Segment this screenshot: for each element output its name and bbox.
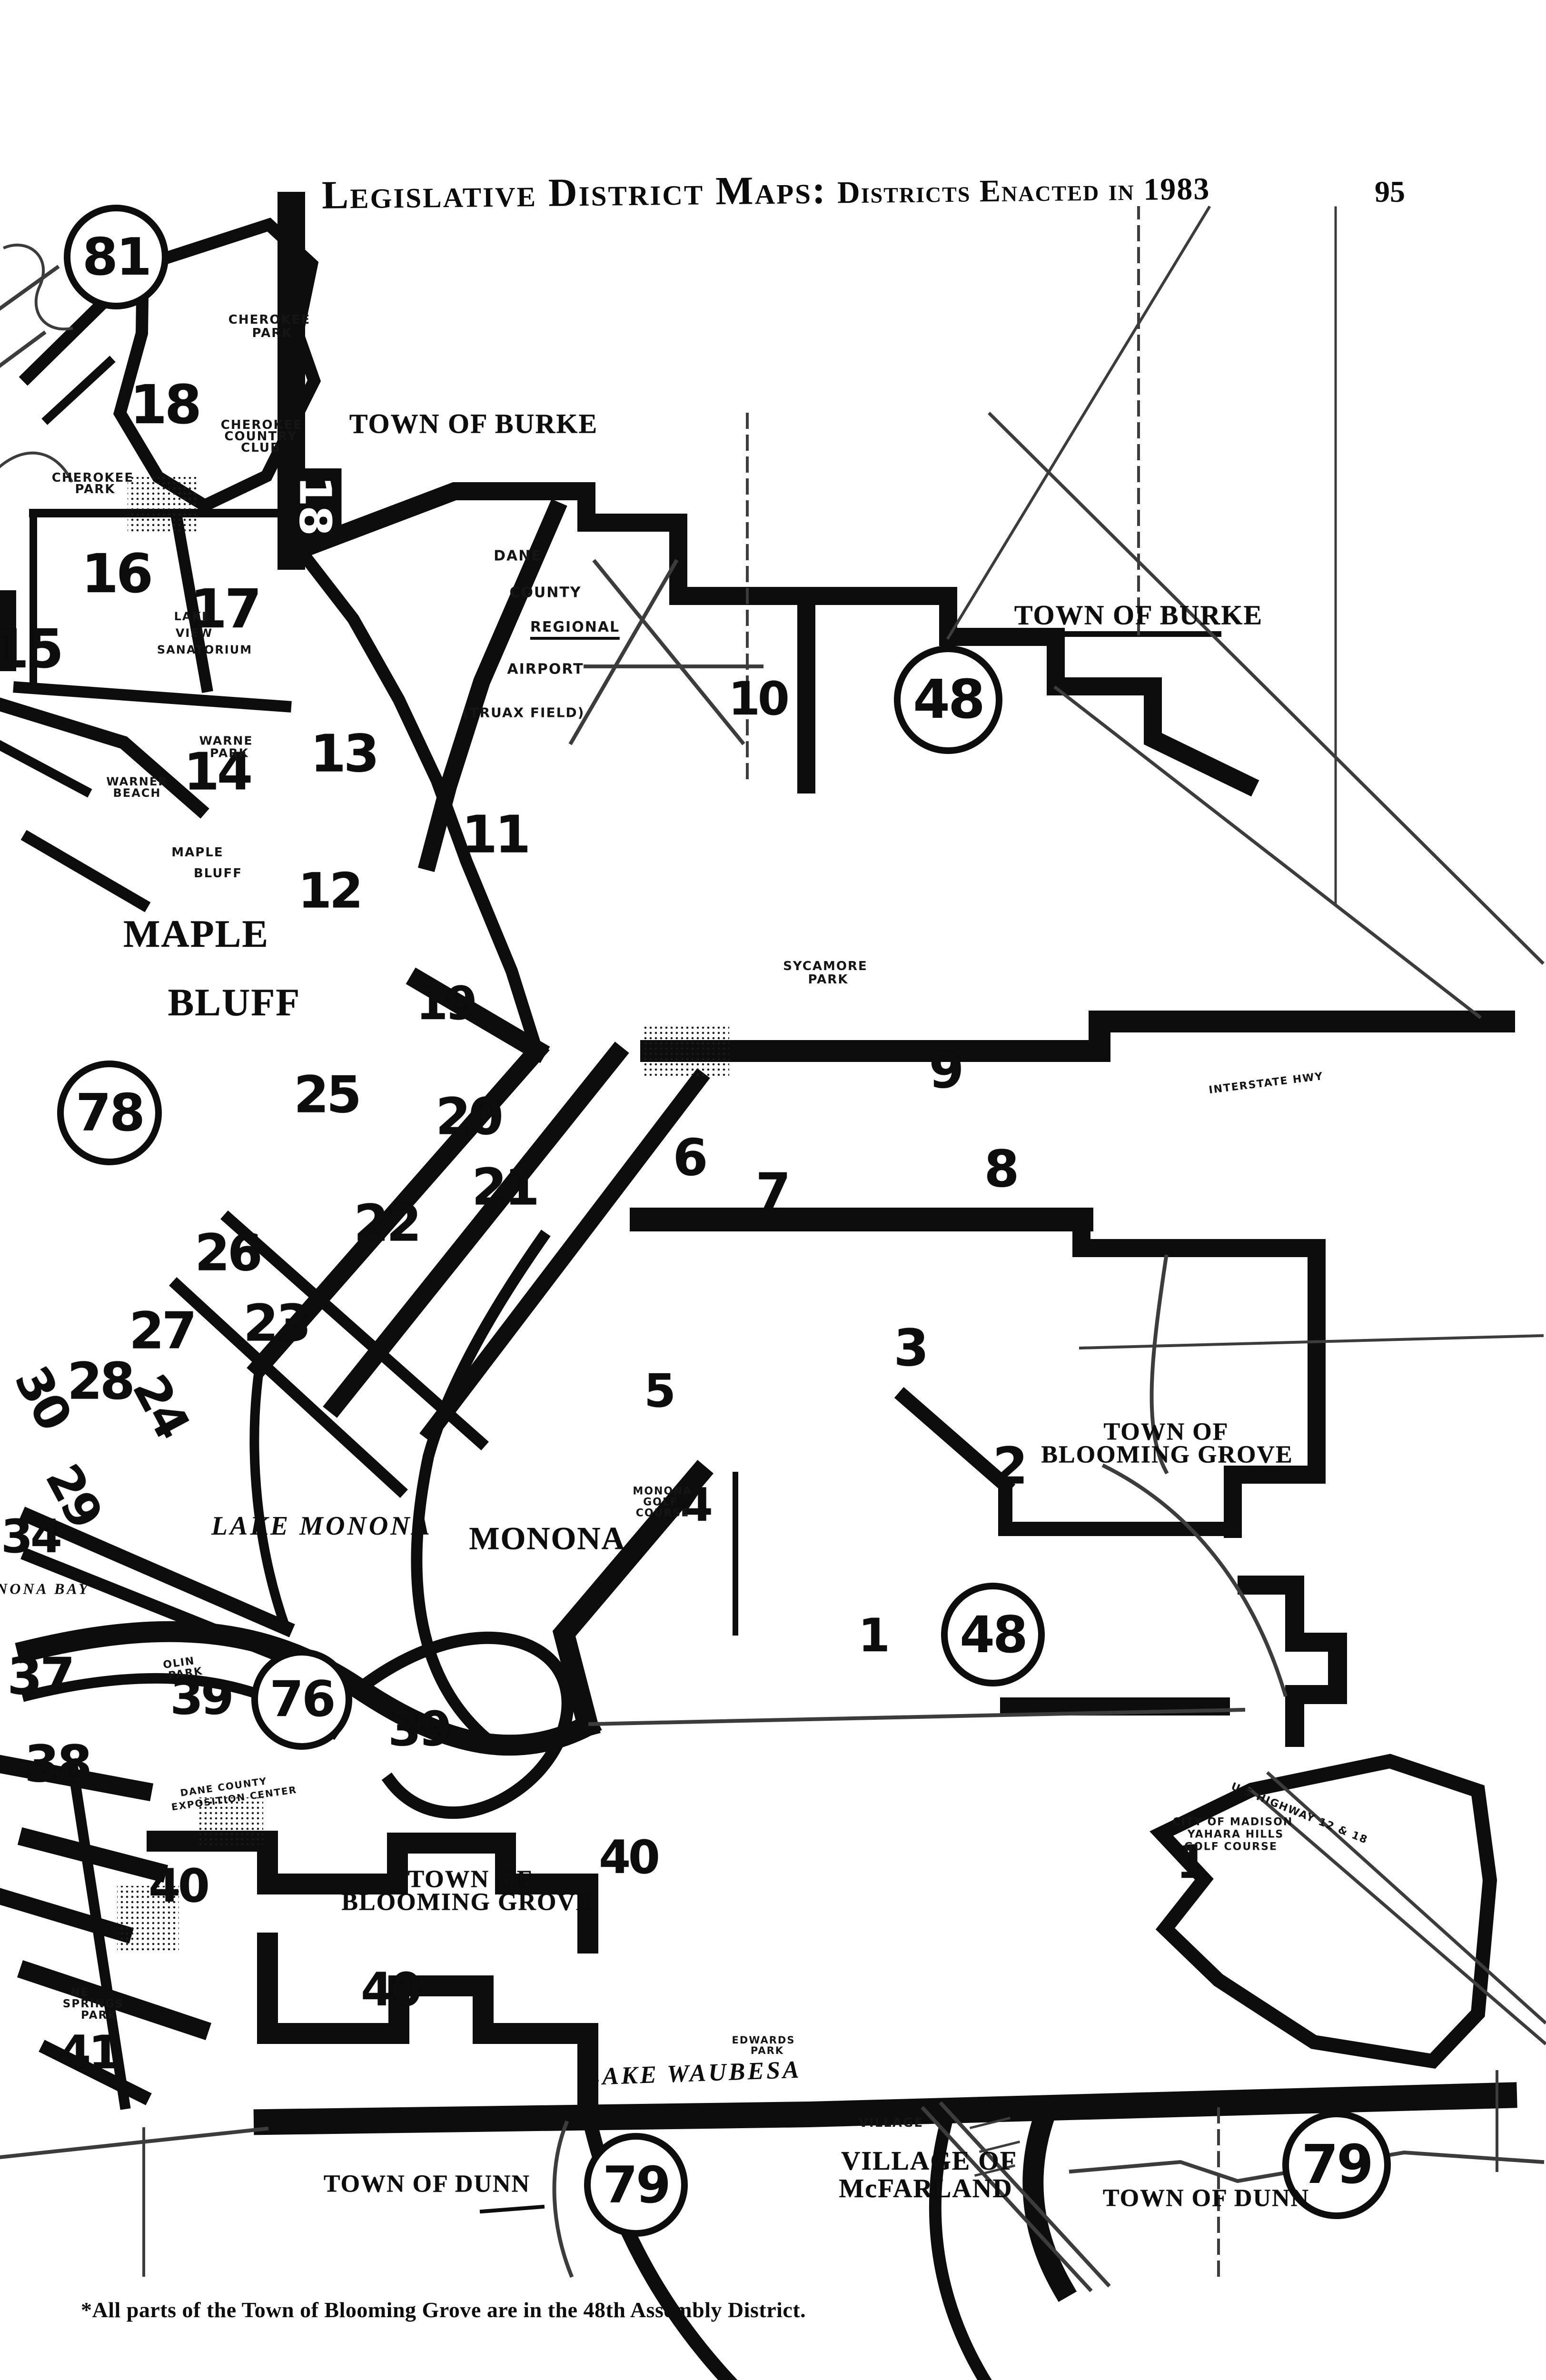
district-number: 37 bbox=[7, 1647, 73, 1706]
place-label: BLUFF bbox=[168, 980, 301, 1025]
district-number: 22 bbox=[354, 1194, 419, 1253]
small-map-label: PARK bbox=[252, 326, 293, 340]
district-number: 23 bbox=[243, 1294, 309, 1353]
district-number: 16 bbox=[81, 543, 151, 605]
circled-district-number: 81 bbox=[64, 205, 168, 309]
small-map-label: PARK bbox=[81, 2009, 117, 2022]
district-number: 1 bbox=[858, 1609, 888, 1662]
district-number: 2 bbox=[993, 1437, 1026, 1496]
district-number: 15 bbox=[0, 618, 61, 680]
small-map-label: PARK bbox=[751, 2045, 784, 2056]
scanned-map-page: Legislative District Maps:Districts Enac… bbox=[0, 0, 1546, 2380]
place-label: TOWN OF BURKE bbox=[349, 408, 598, 440]
district-number: 40 bbox=[599, 1831, 658, 1884]
circled-district-number: 78 bbox=[57, 1061, 162, 1165]
district-number: 13 bbox=[310, 724, 377, 784]
small-map-label: BEACH bbox=[113, 786, 161, 800]
district-number: 7 bbox=[756, 1163, 789, 1221]
lake-label: MONONA BAY bbox=[0, 1580, 90, 1598]
district-number: 21 bbox=[472, 1158, 537, 1217]
district-number: 39 bbox=[388, 1701, 449, 1757]
district-number: 26 bbox=[195, 1224, 260, 1282]
small-map-label: LAKE bbox=[174, 610, 211, 623]
place-label: BLOOMING GROVE bbox=[1041, 1441, 1293, 1469]
place-label: MAPLE bbox=[123, 912, 269, 956]
small-map-label: MAPLE bbox=[171, 845, 223, 860]
small-map-label: SANATORIUM bbox=[157, 643, 252, 656]
district-number: 3 bbox=[894, 1319, 927, 1378]
footnote: *All parts of the Town of Blooming Grove… bbox=[81, 2297, 806, 2322]
place-label: VILLAGE OF bbox=[841, 2146, 1017, 2176]
place-label: TOWN OF DUNN bbox=[1103, 2184, 1309, 2212]
small-map-label: CLUB bbox=[241, 441, 281, 455]
place-label: TOWN OF DUNN bbox=[324, 2170, 530, 2198]
small-map-label: EDWARDS bbox=[732, 2034, 795, 2046]
small-map-label: PARK bbox=[210, 746, 249, 760]
small-map-label: CHEROKEE bbox=[228, 313, 310, 327]
circled-district-number: 48 bbox=[894, 645, 1002, 754]
district-number: 40 bbox=[149, 1859, 208, 1913]
small-map-label: REGIONAL bbox=[530, 619, 620, 640]
district-number: 18 bbox=[289, 468, 342, 543]
small-map-label: WARNE bbox=[199, 734, 253, 748]
district-number: 6 bbox=[673, 1129, 706, 1187]
small-map-label: DANE bbox=[494, 548, 542, 565]
small-map-label: VIEW bbox=[176, 626, 213, 640]
district-number: 24 bbox=[122, 1366, 200, 1447]
place-label: TOWN OF BURKE bbox=[1014, 599, 1263, 631]
map-labels-layer: 8178484876797918181617151413111210192520… bbox=[0, 0, 1546, 2380]
district-number: 41 bbox=[59, 2026, 118, 2079]
place-label: BLOOMING GROVE bbox=[341, 1888, 593, 1916]
district-number: 10 bbox=[728, 672, 787, 725]
small-map-label: PARK bbox=[75, 482, 116, 496]
circled-district-number: 79 bbox=[584, 2133, 688, 2237]
small-map-label: SYCAMORE bbox=[783, 959, 868, 973]
district-number: 40 bbox=[361, 1963, 420, 2016]
district-number: 11 bbox=[462, 805, 528, 865]
district-number: 12 bbox=[298, 863, 361, 920]
small-map-label: MONONA bbox=[633, 1486, 692, 1497]
circled-district-number: 48 bbox=[941, 1583, 1045, 1686]
district-number: 5 bbox=[644, 1364, 674, 1418]
place-label: MONONA bbox=[469, 1520, 625, 1557]
district-number: 38 bbox=[24, 1735, 90, 1794]
small-map-label: COUNTY bbox=[509, 585, 581, 601]
small-map-label: GOLF COURSE bbox=[1184, 1841, 1278, 1853]
district-number: 28 bbox=[67, 1352, 133, 1411]
small-map-label: VILLAGE bbox=[859, 2116, 923, 2130]
circled-district-number: 76 bbox=[251, 1649, 352, 1750]
district-number: 18 bbox=[130, 374, 199, 436]
small-map-label: COURSE bbox=[636, 1507, 690, 1519]
small-map-label: YAHARA HILLS bbox=[1188, 1829, 1284, 1841]
district-number: 8 bbox=[984, 1140, 1017, 1199]
small-map-label: PARK bbox=[808, 972, 849, 987]
small-map-label: CITY OF MADISON bbox=[1173, 1816, 1293, 1828]
small-map-label: NE bbox=[71, 1986, 89, 1999]
small-map-label: INTERSTATE HWY bbox=[1208, 1071, 1324, 1096]
district-number: 19 bbox=[416, 977, 475, 1030]
small-map-label: (TRUAX FIELD) bbox=[463, 705, 585, 721]
lake-label: LAKE WAUBESA bbox=[584, 2056, 802, 2092]
small-map-label: BLUFF bbox=[194, 866, 242, 881]
district-number: 34 bbox=[1, 1510, 60, 1563]
district-number: 20 bbox=[436, 1088, 501, 1146]
lake-label: LAKE MONONA bbox=[211, 1511, 432, 1541]
district-number: 25 bbox=[294, 1066, 359, 1124]
district-number: 9 bbox=[929, 1041, 962, 1100]
place-label: McFARLAND bbox=[839, 2173, 1012, 2204]
district-number: 27 bbox=[129, 1302, 195, 1360]
small-map-label: AIRPORT bbox=[507, 661, 584, 678]
small-map-label: SPRINGS bbox=[63, 1998, 124, 2010]
small-map-label: GOLF bbox=[643, 1497, 678, 1508]
